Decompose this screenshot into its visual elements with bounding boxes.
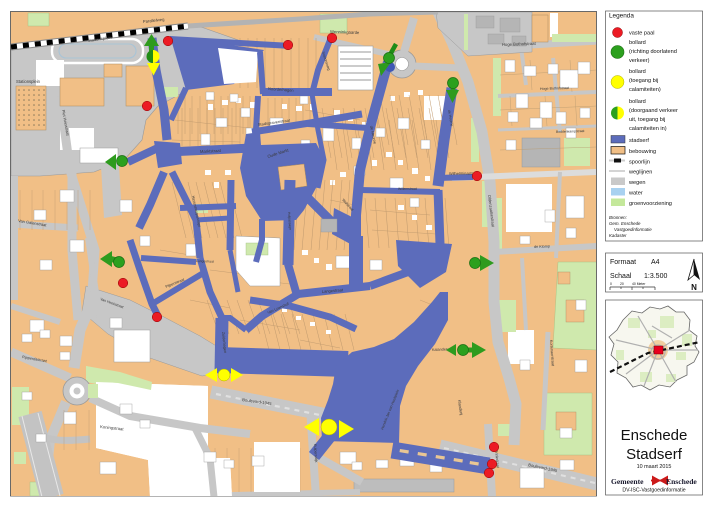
svg-text:40 Meter: 40 Meter	[632, 282, 646, 286]
svg-text:0: 0	[610, 282, 612, 286]
svg-text:Formaat: Formaat	[610, 259, 636, 266]
svg-text:Willemstraat: Willemstraat	[398, 187, 417, 191]
svg-text:A4: A4	[651, 259, 660, 266]
svg-text:(richting doorlatend: (richting doorlatend	[629, 49, 677, 55]
svg-text:de Klomp: de Klomp	[534, 244, 550, 249]
svg-text:(doorgaand verkeer: (doorgaand verkeer	[629, 108, 678, 114]
svg-text:Bronnen:: Bronnen:	[609, 215, 628, 220]
svg-text:Kadaster: Kadaster	[609, 233, 627, 238]
svg-text:10 maart 2015: 10 maart 2015	[637, 464, 672, 470]
svg-text:N: N	[691, 283, 697, 292]
svg-text:bebouwing: bebouwing	[629, 149, 656, 155]
svg-text:weglijnen: weglijnen	[628, 170, 652, 176]
svg-text:Stadserf: Stadserf	[626, 446, 683, 463]
svg-text:calamiteiten): calamiteiten)	[629, 87, 661, 93]
svg-text:bollard: bollard	[629, 40, 646, 46]
svg-text:Enschede: Enschede	[621, 427, 688, 444]
svg-text:Langestraat: Langestraat	[196, 259, 214, 264]
svg-text:spoorlijn: spoorlijn	[629, 160, 650, 166]
svg-text:1:3.500: 1:3.500	[644, 273, 667, 280]
svg-text:groenvoorziening: groenvoorziening	[629, 201, 672, 207]
svg-text:bollard: bollard	[629, 69, 646, 75]
svg-text:wegen: wegen	[628, 180, 645, 186]
svg-text:vaste paal: vaste paal	[629, 31, 655, 37]
svg-text:Enschede: Enschede	[666, 477, 697, 486]
svg-text:Schaal: Schaal	[610, 273, 632, 280]
svg-text:20: 20	[620, 282, 624, 286]
svg-text:water: water	[628, 191, 643, 197]
svg-text:Legenda: Legenda	[609, 13, 634, 20]
svg-text:uit, toegang bij: uit, toegang bij	[629, 117, 665, 123]
svg-text:Gemeente: Gemeente	[611, 477, 644, 486]
svg-text:Vastgoedinformatie: Vastgoedinformatie	[614, 227, 652, 232]
svg-text:Stationsplein: Stationsplein	[16, 79, 41, 84]
svg-text:calamiteiten in): calamiteiten in)	[629, 126, 667, 132]
svg-text:DV-ISC-Vastgoedinformatie: DV-ISC-Vastgoedinformatie	[622, 488, 685, 494]
svg-text:verkeer): verkeer)	[629, 58, 650, 64]
svg-text:bollard: bollard	[629, 99, 646, 105]
svg-text:Gem. Enschede: Gem. Enschede	[609, 221, 641, 226]
svg-text:(toegang bij: (toegang bij	[629, 78, 658, 84]
svg-text:stadserf: stadserf	[629, 138, 649, 144]
